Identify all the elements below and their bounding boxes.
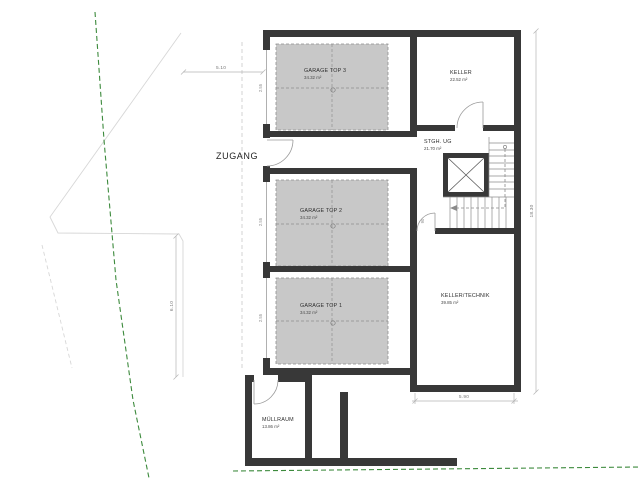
wall-segment xyxy=(410,168,417,385)
room-area: 39.85 m² xyxy=(441,300,459,305)
dim-left: 6.10 xyxy=(169,234,179,380)
dim-garage1-door: 2.55 xyxy=(258,313,263,322)
wall-segment xyxy=(263,30,270,50)
walkline-arrow-icon xyxy=(450,205,457,211)
wall-segment xyxy=(263,266,417,272)
dim-left-value: 6.10 xyxy=(169,301,175,311)
wall-segment xyxy=(340,392,348,462)
room-name: STGH. UG xyxy=(424,139,452,145)
floor-plan-page: 5.10 6.10 18.30 5.90 2.55 2.55 2.55 90 Z xyxy=(0,0,640,480)
garage-top1-slab xyxy=(276,278,388,364)
terrain-lines xyxy=(42,33,242,377)
wall-segment xyxy=(245,375,252,466)
dim-right: 18.30 xyxy=(529,29,539,395)
boundary-line-south xyxy=(233,467,640,471)
room-name: KELLER/TECHNIK xyxy=(441,293,490,299)
dim-bottom: 5.90 xyxy=(412,393,518,404)
dim-bottom-value: 5.90 xyxy=(459,394,469,400)
room-area: 34.32 m² xyxy=(304,75,322,80)
room-name: GARAGE TOP 1 xyxy=(300,303,342,309)
wall-segment xyxy=(410,385,521,392)
room-label-muellraum: MÜLLRAUM 13.86 m² xyxy=(262,416,294,429)
garage-top2-slab xyxy=(276,180,388,266)
wall-segment xyxy=(514,30,521,392)
dim-right-value: 18.30 xyxy=(529,204,535,217)
wall-segment xyxy=(435,228,521,234)
stair-run-east xyxy=(489,137,514,197)
wall-segment xyxy=(263,168,417,174)
room-area: 34.32 m² xyxy=(300,310,318,315)
dim-top-value: 5.10 xyxy=(216,65,226,71)
garage-slabs xyxy=(276,44,388,364)
room-name: KELLER xyxy=(450,70,472,76)
dim-stair-door: 90 xyxy=(420,218,425,223)
entrance-label: ZUGANG xyxy=(216,151,258,161)
stair-core xyxy=(443,137,514,228)
floor-plan-drawing: 5.10 6.10 18.30 5.90 2.55 2.55 2.55 90 Z xyxy=(0,0,640,480)
wall-segment xyxy=(410,228,417,234)
dim-garage3-door: 2.55 xyxy=(258,83,263,92)
wall-segment xyxy=(263,30,521,37)
muellraum-door xyxy=(254,380,278,404)
dim-top: 5.10 xyxy=(181,65,266,75)
garage-top3-slab xyxy=(276,44,388,130)
room-label-technik: KELLER/TECHNIK 39.85 m² xyxy=(441,293,490,305)
room-label-keller: KELLER 22.52 m² xyxy=(450,70,472,82)
entrance-door xyxy=(267,140,293,166)
room-area: 13.86 m² xyxy=(262,424,280,429)
site-dashed-line xyxy=(42,245,72,368)
dim-garage2-door: 2.55 xyxy=(258,217,263,226)
stair-run-south xyxy=(443,197,514,228)
room-name: GARAGE TOP 2 xyxy=(300,208,342,214)
boundary-line-west xyxy=(95,12,149,478)
room-area: 21.70 m² xyxy=(424,146,442,151)
room-label-stgh: STGH. UG 21.70 m² xyxy=(424,139,452,151)
room-area: 34.32 m² xyxy=(300,215,318,220)
wall-segment xyxy=(263,131,417,137)
elevator-shaft xyxy=(446,156,487,195)
wall-segment xyxy=(410,37,417,137)
room-name: MÜLLRAUM xyxy=(262,416,294,423)
wall-segment xyxy=(410,125,455,131)
retaining-wall xyxy=(245,458,457,466)
wall-segment xyxy=(263,358,270,368)
room-area: 22.52 m² xyxy=(450,77,468,82)
keller-door xyxy=(457,102,483,128)
wall-segment xyxy=(263,368,417,375)
wall-segment xyxy=(305,375,312,466)
room-name: GARAGE TOP 3 xyxy=(304,68,346,74)
wall-segment xyxy=(483,125,521,131)
driveway-outline xyxy=(50,33,183,377)
